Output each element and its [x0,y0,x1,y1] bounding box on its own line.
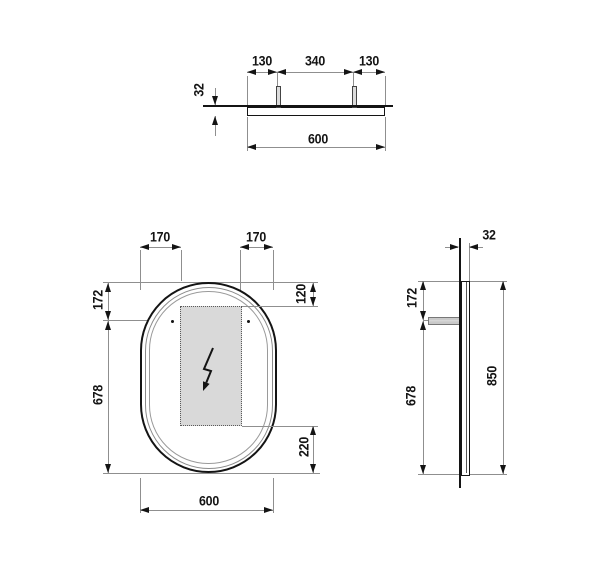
mirror-body-plan [247,107,385,116]
arrowhead [172,244,181,250]
arrowhead [140,507,149,513]
ext-line [247,76,248,105]
arrowhead [353,69,362,75]
arrowhead [247,69,256,75]
dim-line [108,321,109,473]
arrowhead [469,244,478,250]
arrowhead [420,321,426,330]
ext-line-bottom-tangent [103,473,320,474]
arrowhead [376,144,385,150]
dim-label-side-850: 850 [485,366,500,386]
dim-label-front-678: 678 [91,385,106,405]
glass-line-side [466,282,467,473]
arrowhead [450,244,459,250]
arrowhead [268,69,277,75]
dim-label-front-120: 120 [294,284,309,304]
arrowhead [212,96,218,105]
ext-line [181,250,182,281]
arrowhead [140,244,149,250]
dim-label-side-172: 172 [405,288,420,308]
arrowhead [310,297,316,306]
dim-label-top-130-left: 130 [252,54,272,69]
arrowhead [247,144,256,150]
arrowhead [344,69,353,75]
arrowhead [310,283,316,292]
dim-label-side-678: 678 [404,386,419,406]
dim-label-top-340: 340 [305,54,325,69]
arrowhead [105,464,111,473]
arrowhead [264,507,273,513]
dim-label-top-130-right: 130 [359,54,379,69]
dim-label-top-600: 600 [308,132,328,147]
arrowhead [310,464,316,473]
arrowhead [105,321,111,330]
dim-line [247,147,385,148]
wall-bracket-side [428,317,460,325]
arrowhead [277,69,286,75]
arrowhead [500,465,506,474]
arrowhead [376,69,385,75]
dim-label-front-220: 220 [297,437,312,457]
hanger-point [247,320,250,323]
dim-line [140,510,273,511]
ext-line [385,76,386,105]
dim-label-front-170-left: 170 [150,230,170,245]
dim-label-top-32: 32 [192,83,207,96]
arrowhead [212,116,218,125]
arrowhead [420,281,426,290]
dim-label-front-172: 172 [91,290,106,310]
ext-line [140,250,141,290]
dim-label-front-600: 600 [199,494,219,509]
ext-line [273,250,274,290]
arrowhead [500,281,506,290]
ext-line [242,426,318,427]
arrowhead [420,311,426,320]
dim-line [423,321,424,474]
arrowhead [420,465,426,474]
wall-line-plan [203,105,393,107]
wall-line-side [459,238,461,488]
dim-label-side-32: 32 [482,228,495,243]
hanger-point [171,320,174,323]
electrical-connection-icon [198,345,218,395]
arrowhead [310,426,316,435]
arrowhead [105,311,111,320]
ext-line [242,306,318,307]
dim-line [503,281,504,474]
dim-label-front-170-right: 170 [246,230,266,245]
technical-drawing-canvas: 130 340 130 32 600 170 170 172 [0,0,600,574]
